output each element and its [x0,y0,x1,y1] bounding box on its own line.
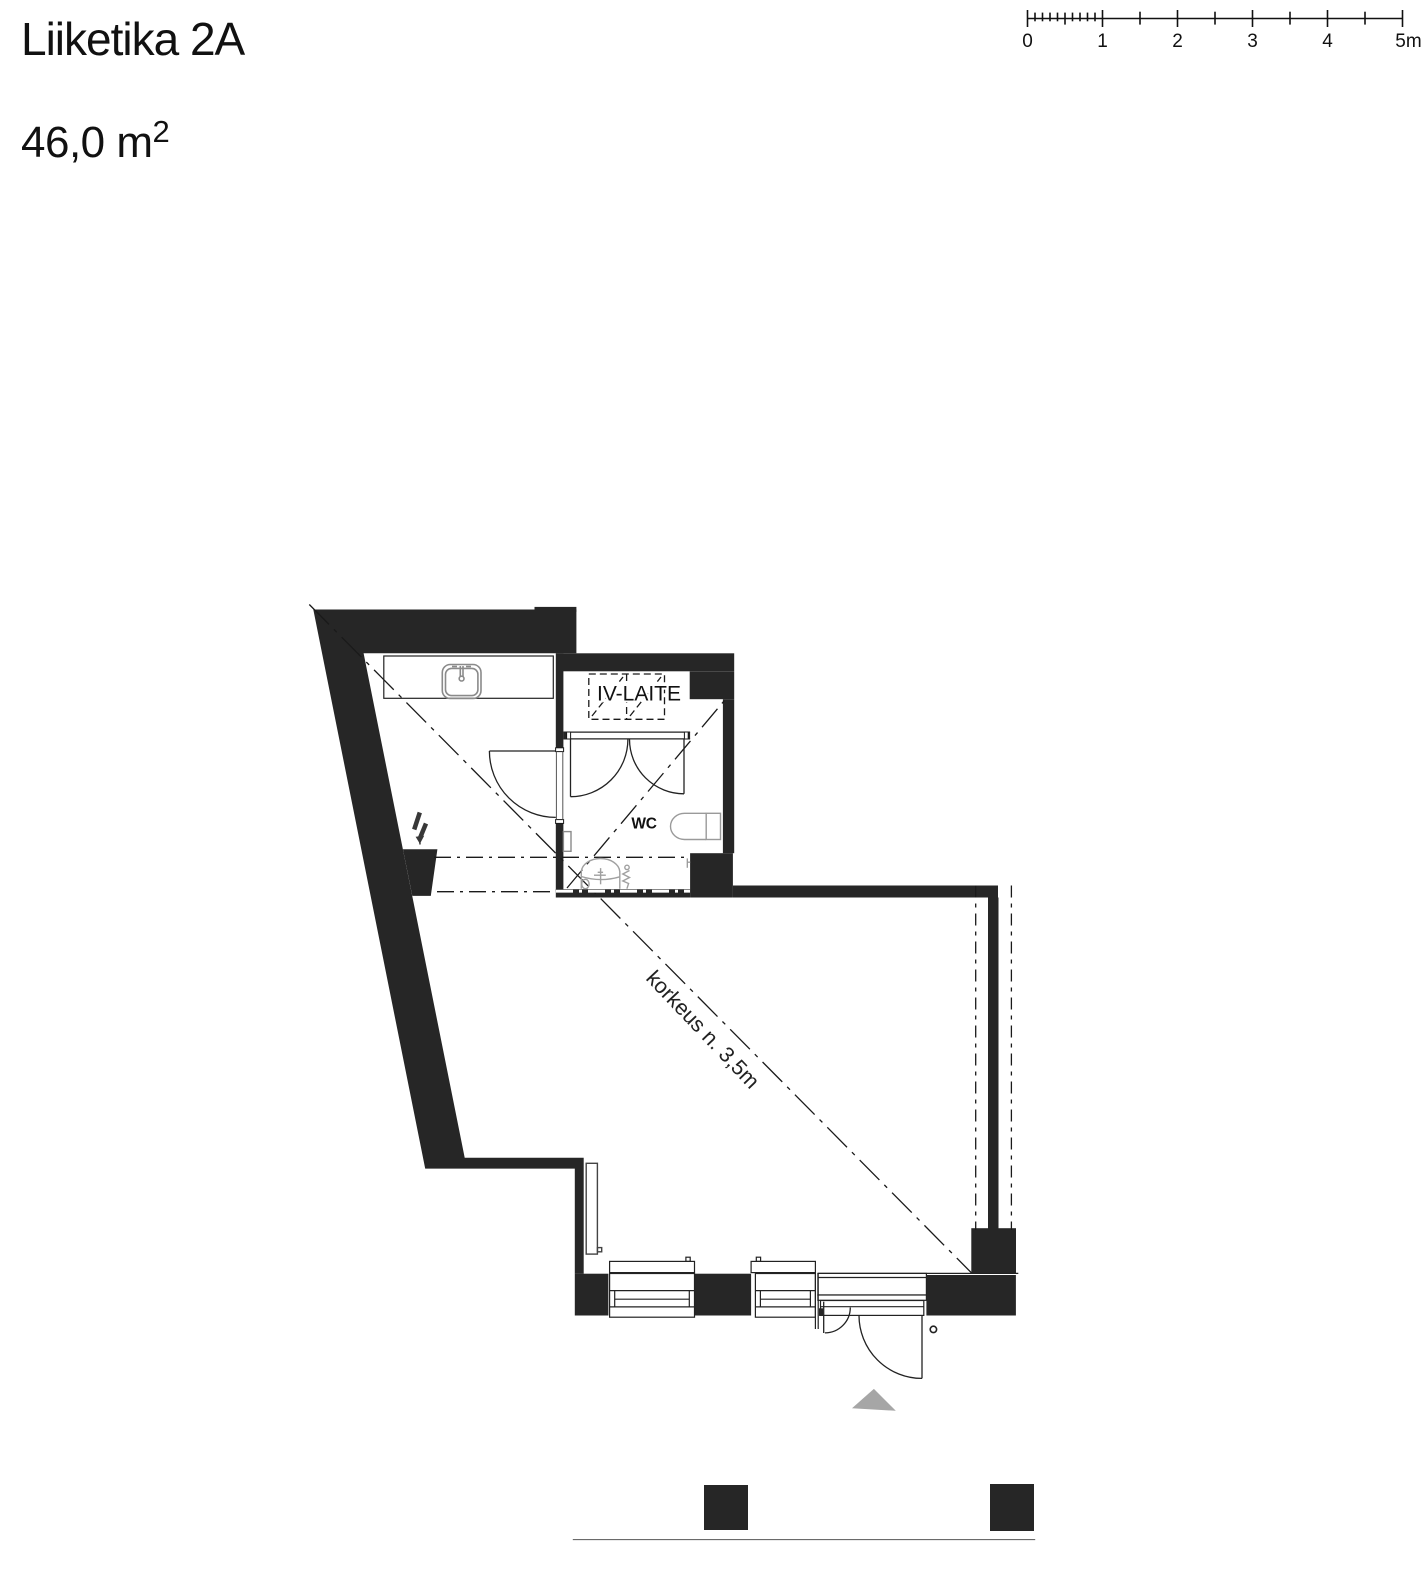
svg-text:3: 3 [1247,31,1258,52]
svg-text:WC: WC [631,816,656,833]
svg-text:5m: 5m [1395,31,1421,52]
svg-text:2: 2 [1172,31,1183,52]
svg-text:46,0 m2: 46,0 m2 [21,114,169,167]
svg-text:0: 0 [1022,31,1033,52]
svg-text:1: 1 [1097,31,1108,52]
svg-text:4: 4 [1322,31,1333,52]
svg-text:Liiketika 2A: Liiketika 2A [21,13,246,65]
svg-text:IV-LAITE: IV-LAITE [597,683,681,706]
